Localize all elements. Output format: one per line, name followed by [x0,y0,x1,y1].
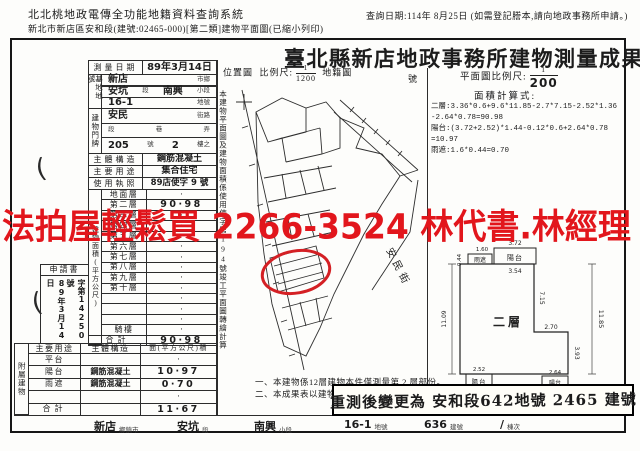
dim-line-left [448,264,456,374]
door-street-value: 安民 [108,111,128,121]
annex-total-area: 11·67 [140,403,217,416]
annex-total-label: 合計 [28,403,81,416]
calc-line: -2.64*0.78=90.98 [431,113,627,124]
site-row-city: 新店 市鄉 [101,74,217,86]
site-section-suffix: 段 [142,88,149,95]
street-name-label: 安民街 [383,245,414,288]
plan-scale-label: 平面圖比例尺: [460,72,527,82]
document-page: 北北桃地政電傳全功能地籍資料查詢系統 新北市新店區安和段(建號:02465-00… [0,0,640,451]
site-city-value: 新店 [108,75,128,85]
dim-top-inner: 3.54 [508,268,522,275]
site-lotno-value: 16-1 [108,98,133,108]
annex-row-use: 雨遮 [28,378,81,391]
dim-line-right [588,264,596,374]
dim-bottom-right: 2.64 [549,370,562,376]
footer-lot-suffix: 地號 [375,421,388,431]
dim-right-inner: 7.15 [538,291,545,305]
footer-building-number: 636 建號 [424,418,463,431]
footer-block-value: ∕ [500,418,504,431]
door-lane-suffix: 巷 [156,127,163,134]
annex-total-structure [80,403,141,416]
calc-title: 面積計算式: [474,88,536,102]
floor-label: 二層 [493,315,523,329]
footer-township-value: 新店 [94,418,116,434]
footer-subsection-value: 南興 [254,418,276,434]
calc-line: 陽台:(3.72+2.52)*1.44-0.12*0.6+2.64*0.78 [431,124,627,135]
door-row-lane: 段 巷 弄 [101,123,217,138]
annex-row-use: 陽台 [28,365,81,378]
site-subsection-suffix: 小段 [197,88,210,95]
door-alley-suffix: 弄 [204,127,211,134]
upper-parcels [256,108,340,162]
door-duan-suffix: 段 [108,127,115,134]
door-floor-suffix: 樓之 [197,142,210,149]
calc-line: 二層:3.36*0.6+9.6*11.85-2.7*7.15-2.52*1.36 [431,102,627,113]
map-type-label: 地籍圖 [322,67,352,77]
balcony-top-label: 陽台 [507,253,523,262]
calc-line: =10.97 [431,135,627,146]
survey-date-label: 測量日期 [88,60,143,75]
footer-section-value: 安坑 [177,418,199,434]
annex-vertical-label: 附屬建物 [14,343,29,415]
footer-township-suffix: 鄉鎮市 [119,424,139,434]
site-row-section: 安坑 段 南興 小段 [101,86,217,98]
annex-row-structure [80,390,141,403]
plan-scale-fraction: 1200 [530,66,558,89]
annex-row-structure: 鋼筋混凝土 [80,365,141,378]
footer-lot-number: 16-1 地號 [344,418,388,431]
footer-subsection-suffix: 小段 [279,424,292,434]
survey-cross-mark [236,94,252,110]
site-city-suffix: 市鄉 [197,77,210,84]
map-scale-num: 1 [304,64,309,72]
mid-parcels [264,166,336,202]
canopy-label: 雨遮 [474,256,486,264]
map-label: 位置圖 [223,67,253,77]
annex-row-structure: 鋼筋混凝土 [80,378,141,391]
door-row-number: 205 號 2 樓之 [101,137,217,154]
annex-row-area: · [140,353,217,366]
door-street-suffix: 街路 [197,113,210,120]
diagonal-road [334,100,418,182]
watermark-ad-text: 法拍屋輕鬆買 2266-3524 林代書.林經理 [2,199,631,249]
handwritten-bracket: ( [33,153,48,184]
footer-township: 新店 鄉鎮市 [94,418,139,434]
dim-bottom-left: 2.52 [473,367,485,373]
footer-building-suffix: 建號 [450,421,463,431]
plan-scale-row: 平面圖比例尺:1200 [460,66,561,89]
plan-scale-num: 1 [541,66,546,74]
footer-block-number: ∕ 棟次 [500,418,520,431]
annex-row-area: · [140,390,217,403]
footer-subsection: 南興 小段 [254,418,292,434]
resurvey-stamp-box: 重測後變更為 安和段642地號 2465 建號 [332,384,634,416]
door-number-suffix: 號 [147,142,154,149]
application-date: 89年3月14日 [45,279,67,341]
application-label: 申請書 [40,264,89,276]
query-date: 查詢日期:114年 8月25日 (如需登記謄本,請向地政事務所申請。) [366,9,628,22]
annex-row-area: 10·97 [140,365,217,378]
dim-step: 2.70 [544,324,558,331]
annex-row-use [28,390,81,403]
map-header: 位置圖 比例尺:11200 地籍圖 [223,64,352,83]
survey-date-value: 89年3月14日 [142,60,217,75]
map-scale-fraction: 11200 [296,64,316,83]
door-floor-value: 2 [172,141,179,151]
plan-dim-lines [448,264,596,398]
door-plate-label: 建物門牌 [88,108,102,154]
system-title: 北北桃地政電傳全功能地籍資料查詢系統 [28,6,244,22]
lower-parcels [282,296,332,330]
annex-row-structure [80,353,141,366]
site-section-value: 安坑 [108,87,128,97]
site-subsection-value: 南興 [163,87,183,97]
document-subtitle: 新北市新店區安和段(建號:02465-000)[第二類]建物平面圖(已縮小列印) [28,22,323,35]
calc-line: 雨遮:1.6*0.44=0.70 [431,146,627,157]
dim-canopy-h: 0.44 [457,253,463,266]
door-row-street: 安民 街路 [101,108,217,124]
door-number-value: 205 [108,141,129,151]
resurvey-stamp-text: 重測後變更為 安和段642地號 2465 建號 [330,388,637,412]
footer-building-value: 636 [424,418,447,431]
dim-left: 11.09 [441,310,448,327]
footer-block-suffix: 棟次 [507,421,520,431]
footer-section-suffix: 段 [202,424,209,434]
annex-row-area: 0·70 [140,378,217,391]
dim-lower-right: 3.93 [573,346,580,360]
map-scale-label: 比例尺: [260,67,294,77]
dim-right: 11.85 [597,310,605,329]
footer-section: 安坑 段 [177,418,209,434]
site-lotno-suffix: 地號 [197,100,210,107]
footer-lot-value: 16-1 [344,418,372,431]
annex-row-use: 平台 [28,353,81,366]
site-lot-label: 基地地號 [88,74,102,109]
plan-scale-den: 200 [530,77,558,89]
application-number: 字第14250號 [65,279,87,341]
